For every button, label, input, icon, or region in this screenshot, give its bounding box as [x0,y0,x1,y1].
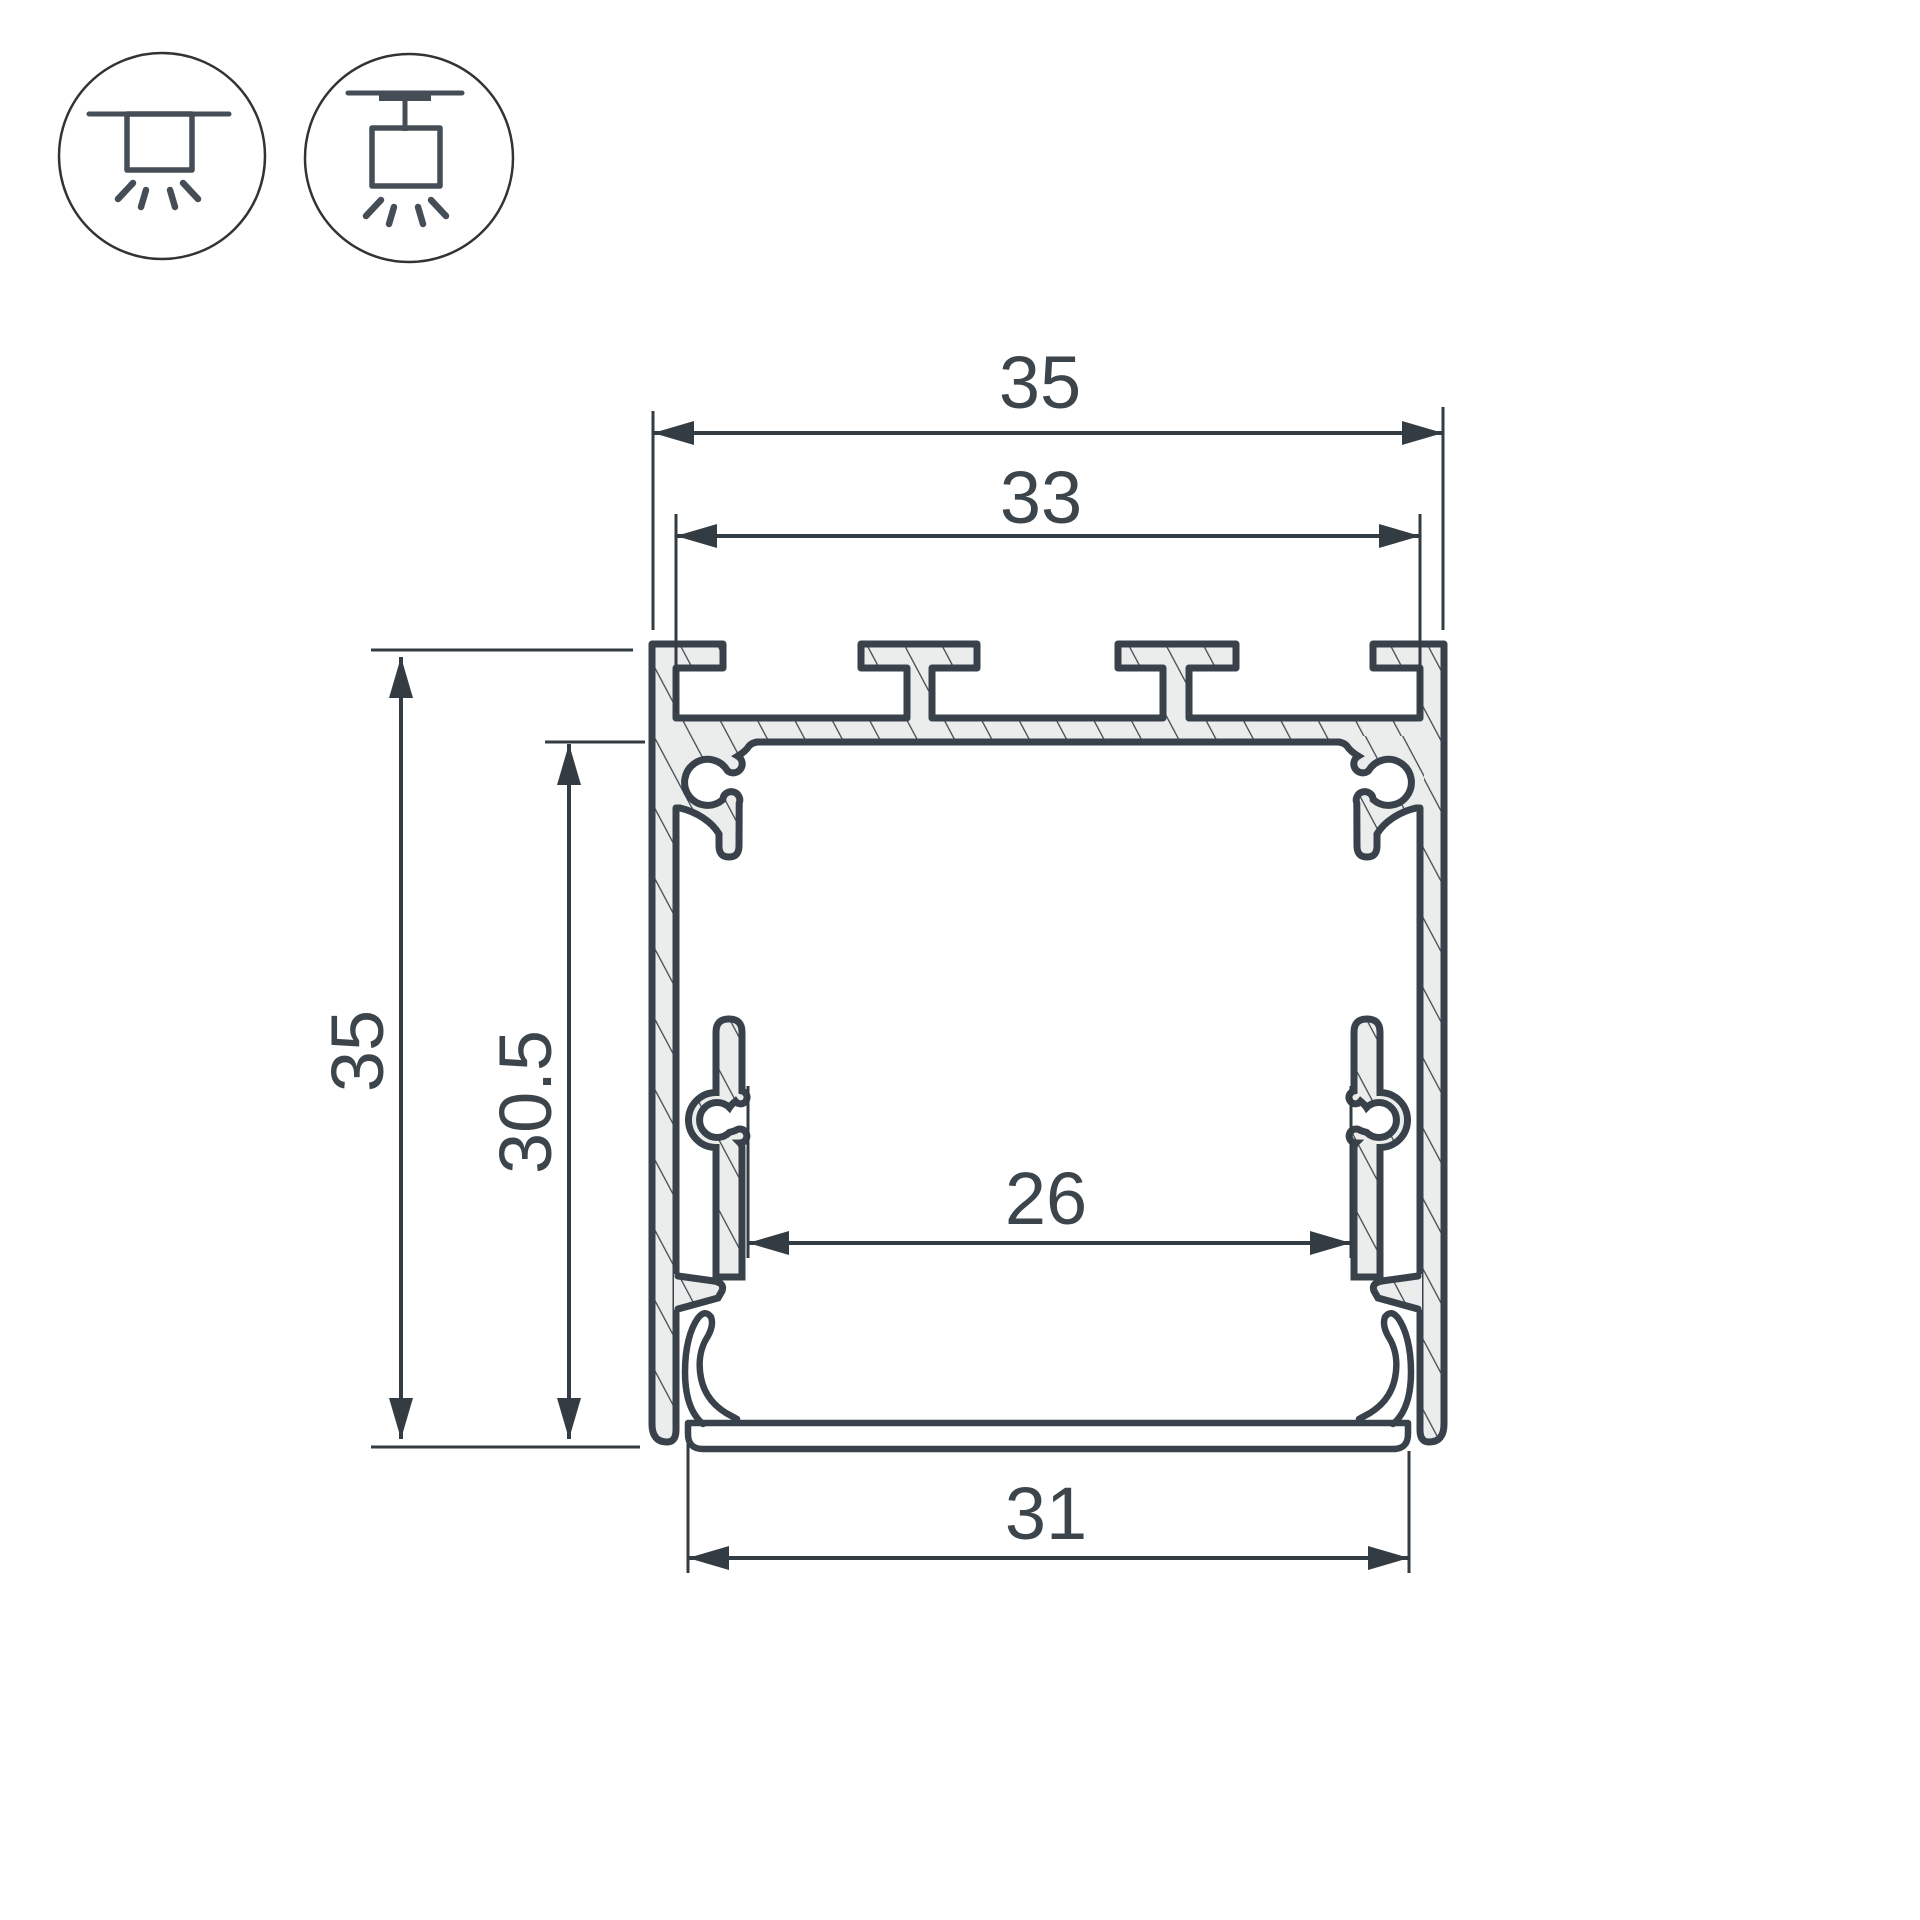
svg-text:33: 33 [1000,456,1082,539]
svg-text:35: 35 [999,341,1081,424]
svg-text:31: 31 [1005,1472,1087,1555]
svg-text:35: 35 [316,1010,399,1092]
svg-text:30.5: 30.5 [484,1030,567,1174]
svg-text:26: 26 [1005,1157,1087,1240]
